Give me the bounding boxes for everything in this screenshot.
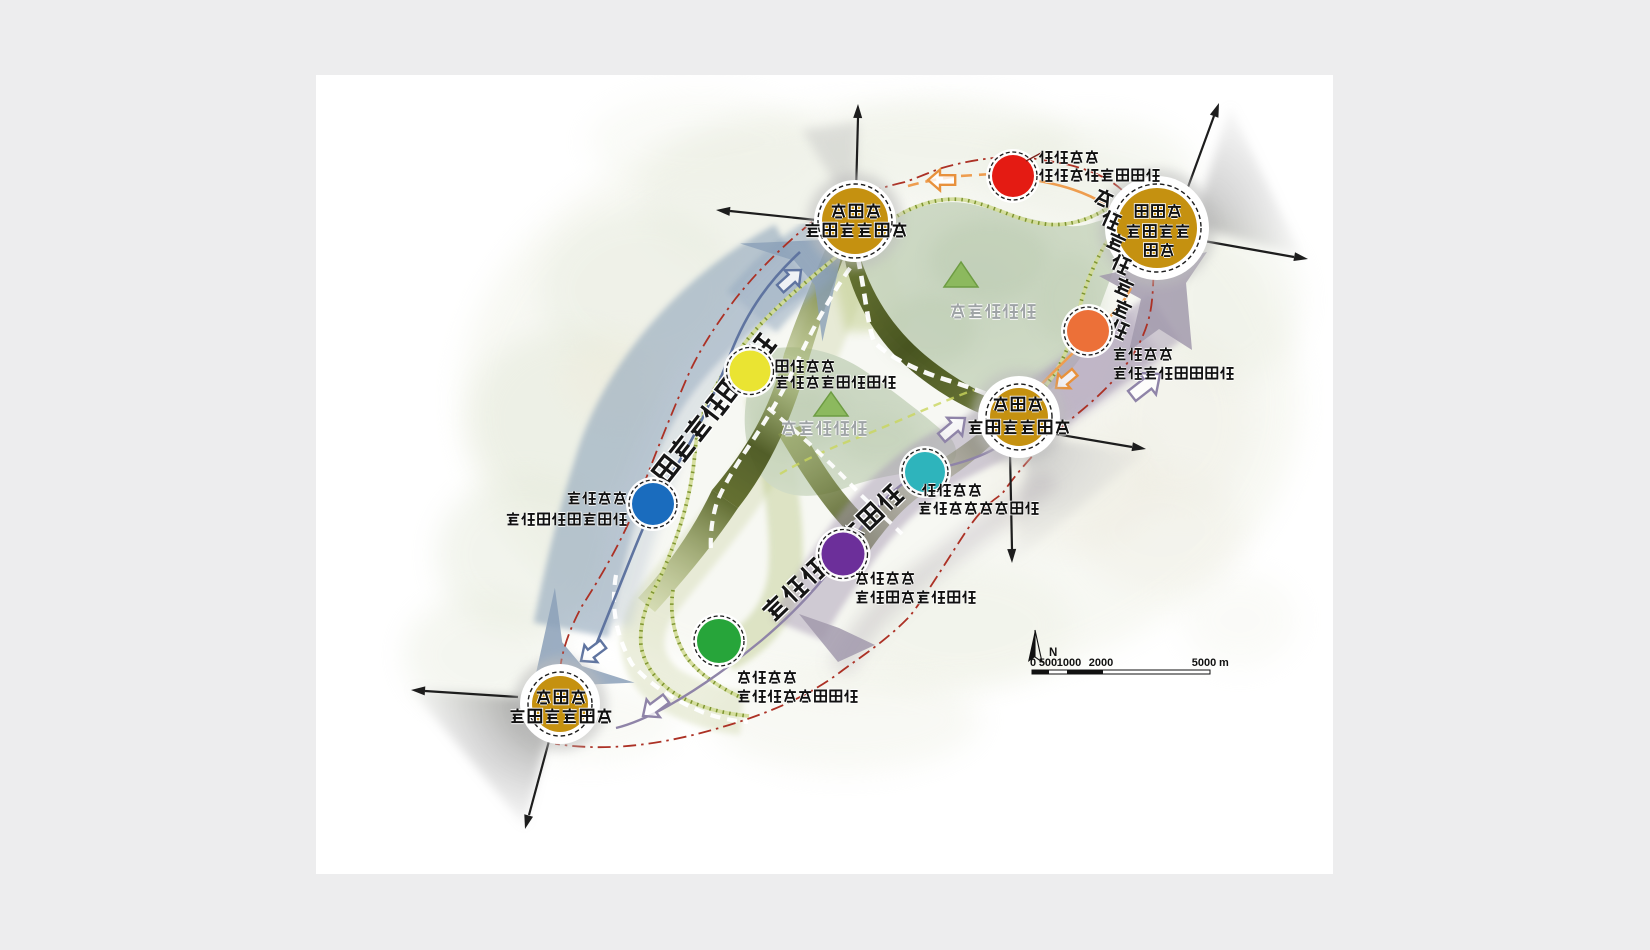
svg-text:m: m	[1219, 657, 1229, 669]
svg-text:500: 500	[1039, 657, 1057, 669]
svg-text:0: 0	[1030, 657, 1036, 669]
svg-text:1000: 1000	[1057, 657, 1081, 669]
svg-text:2000: 2000	[1089, 657, 1113, 669]
svg-text:5000: 5000	[1192, 657, 1216, 669]
